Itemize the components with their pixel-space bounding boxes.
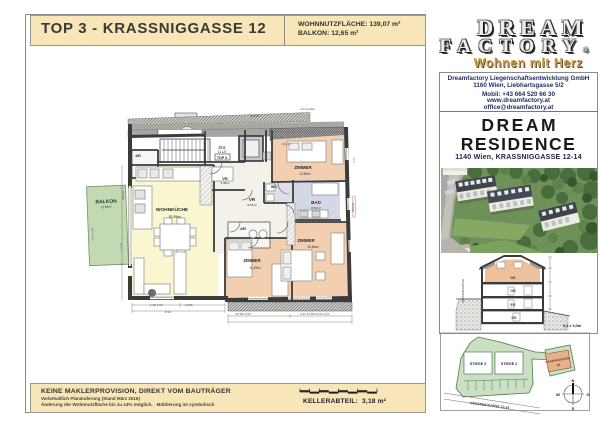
svg-text:1,38 4,50: 1,38 4,50 bbox=[150, 303, 163, 307]
svg-text:8,93: 8,93 bbox=[165, 310, 171, 314]
svg-text:13,05: 13,05 bbox=[119, 243, 123, 250]
svg-text:1,01 4x750=3,00 1,01: 1,01 4x750=3,00 1,01 bbox=[300, 312, 329, 316]
svg-text:8,51m²: 8,51m² bbox=[311, 206, 320, 210]
svg-text:4,49m²: 4,49m² bbox=[221, 181, 230, 185]
svg-text:ZIMMER: ZIMMER bbox=[297, 238, 315, 243]
svg-text:AR: AR bbox=[135, 154, 141, 158]
svg-text:8,57m²: 8,57m² bbox=[247, 203, 256, 207]
svg-text:BAD: BAD bbox=[311, 200, 321, 205]
svg-text:1,50: 1,50 bbox=[352, 157, 356, 163]
svg-text:2,60 x 4,85: 2,60 x 4,85 bbox=[90, 227, 95, 241]
svg-text:AR: AR bbox=[240, 226, 246, 231]
svg-text:82,55m²: 82,55m² bbox=[169, 215, 182, 219]
svg-text:12,65m²: 12,65m² bbox=[101, 205, 112, 209]
svg-text:4x750=3,00: 4x750=3,00 bbox=[235, 312, 251, 316]
svg-text:WOHNKÜCHE: WOHNKÜCHE bbox=[156, 206, 189, 213]
svg-text:90/240: 90/240 bbox=[282, 142, 291, 146]
svg-text:VR: VR bbox=[249, 197, 256, 202]
svg-text:90/240: 90/240 bbox=[351, 202, 355, 212]
svg-text:13,49m²: 13,49m² bbox=[299, 172, 311, 176]
svg-text:2,095: 2,095 bbox=[185, 303, 193, 307]
svg-text:WC: WC bbox=[271, 185, 278, 189]
svg-text:90/240: 90/240 bbox=[250, 114, 260, 118]
svg-text:ZIMMER: ZIMMER bbox=[294, 165, 312, 170]
svg-text:90/240: 90/240 bbox=[121, 190, 125, 200]
svg-text:ZIMMER: ZIMMER bbox=[243, 258, 261, 263]
svg-text:11 1/2: 11 1/2 bbox=[218, 150, 227, 154]
svg-text:+4x=2,96m: +4x=2,96m bbox=[300, 107, 316, 111]
svg-text:TOP 3: TOP 3 bbox=[217, 156, 227, 160]
svg-text:16,46m²: 16,46m² bbox=[307, 245, 319, 249]
svg-text:11,49m²: 11,49m² bbox=[249, 266, 260, 270]
